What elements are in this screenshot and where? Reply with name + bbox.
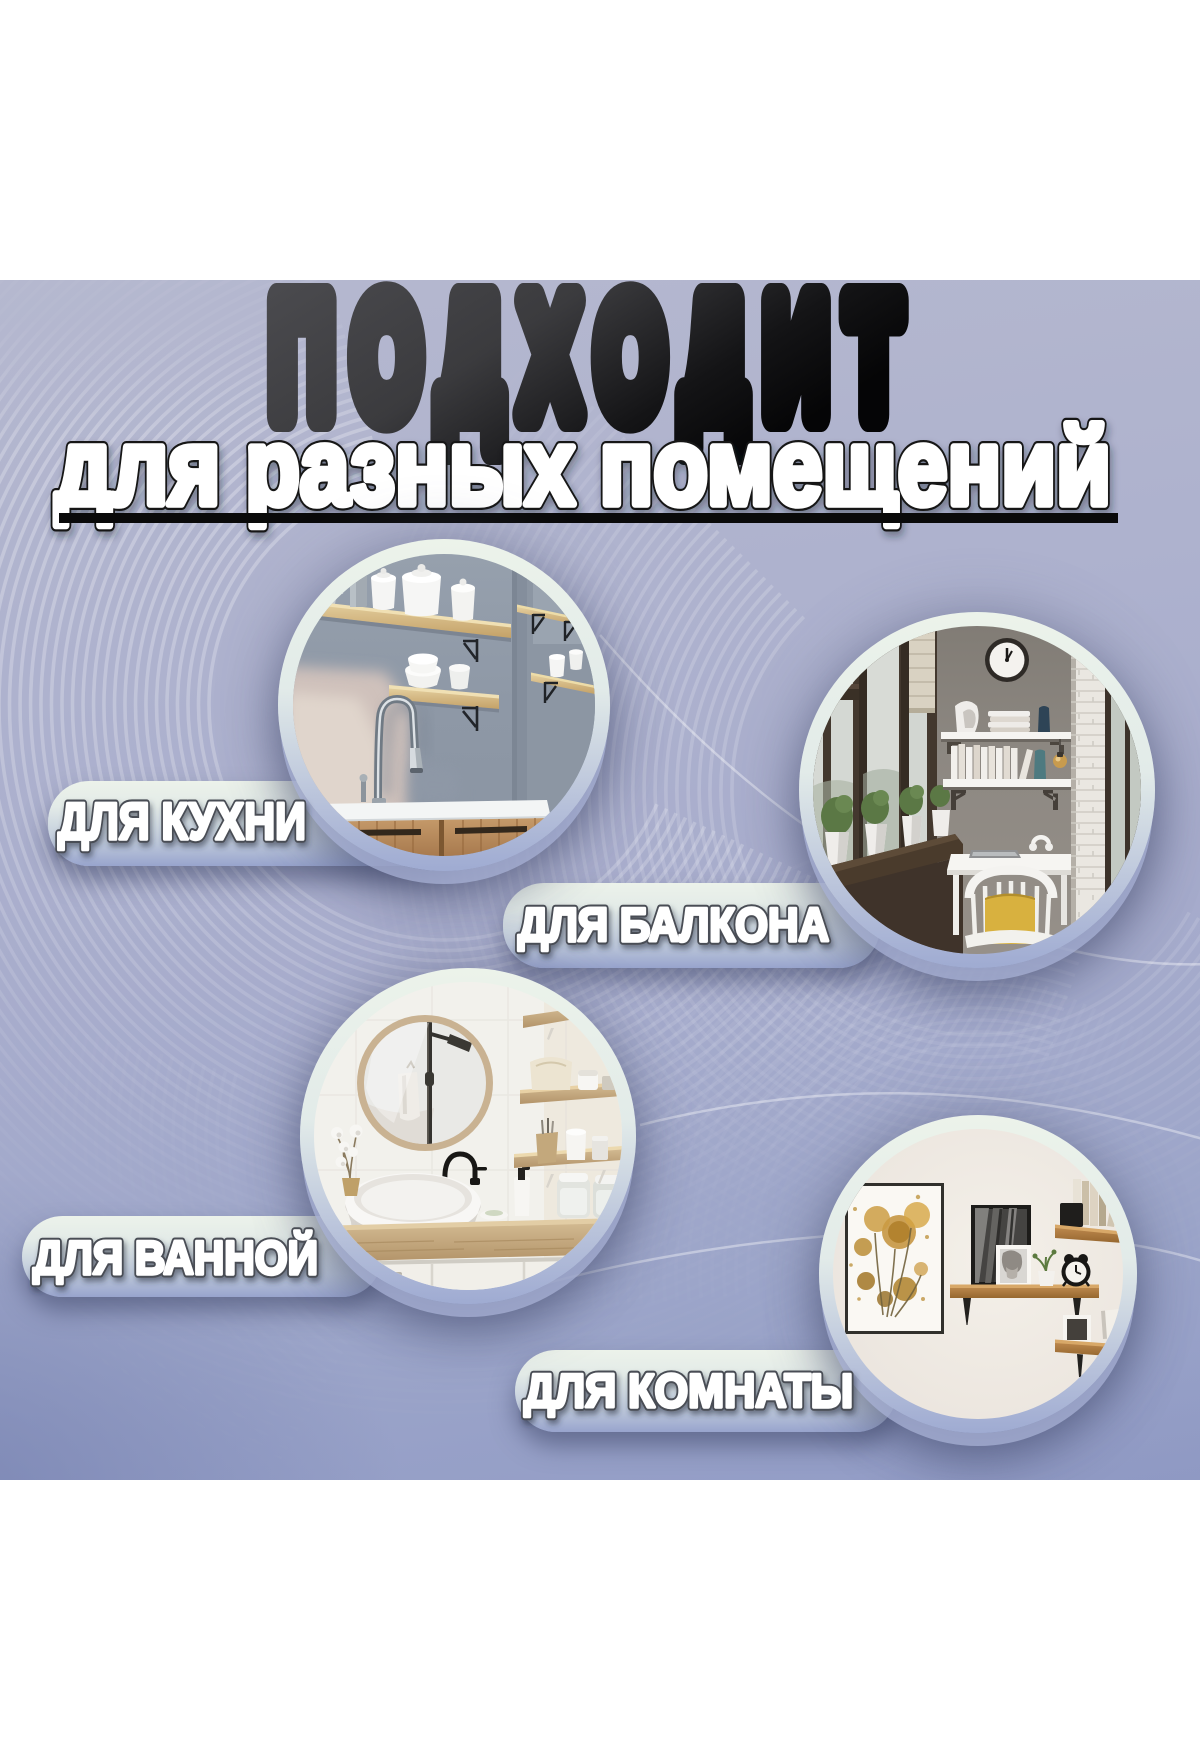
svg-text:ДЛЯ КОМНАТЫ: ДЛЯ КОМНАТЫ <box>524 1365 853 1418</box>
svg-text:ДЛЯ КУХНИ: ДЛЯ КУХНИ <box>58 793 306 851</box>
svg-text:ДЛЯ ВАННОЙ: ДЛЯ ВАННОЙ <box>33 1230 318 1285</box>
svg-text:ДЛЯ БАЛКОНА: ДЛЯ БАЛКОНА <box>518 899 829 952</box>
